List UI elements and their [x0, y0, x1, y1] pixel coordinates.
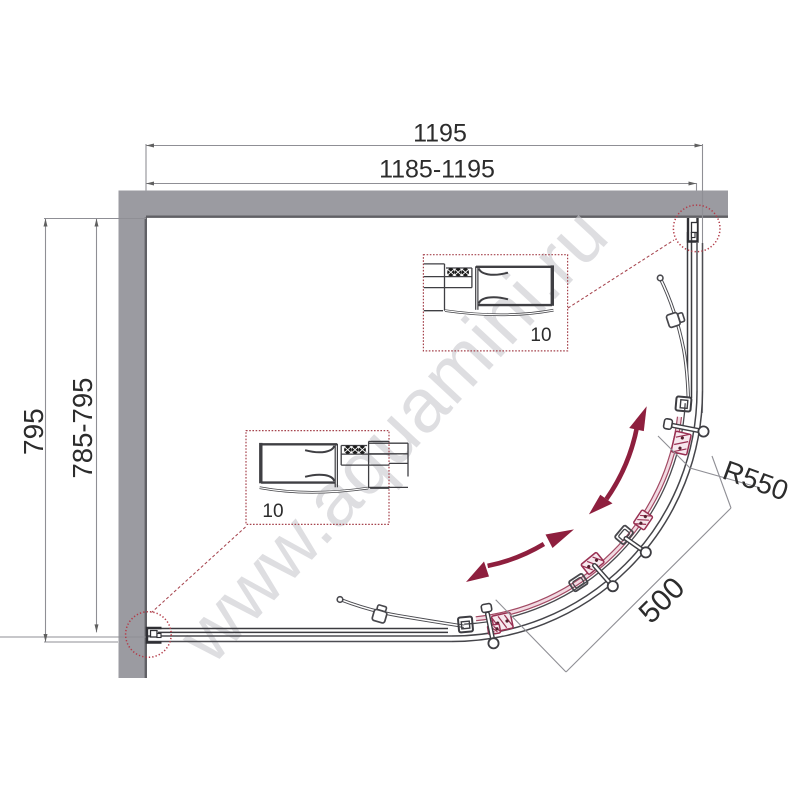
svg-text:R550: R550 [719, 455, 793, 507]
svg-text:www.aquamini.ru: www.aquamini.ru [162, 192, 625, 679]
svg-text:785-795: 785-795 [67, 378, 98, 479]
svg-text:10: 10 [530, 325, 551, 346]
svg-text:500: 500 [633, 571, 692, 630]
svg-text:1195: 1195 [413, 120, 467, 148]
svg-text:795: 795 [18, 408, 49, 455]
svg-text:1185-1195: 1185-1195 [379, 156, 495, 184]
svg-text:10: 10 [262, 501, 283, 522]
